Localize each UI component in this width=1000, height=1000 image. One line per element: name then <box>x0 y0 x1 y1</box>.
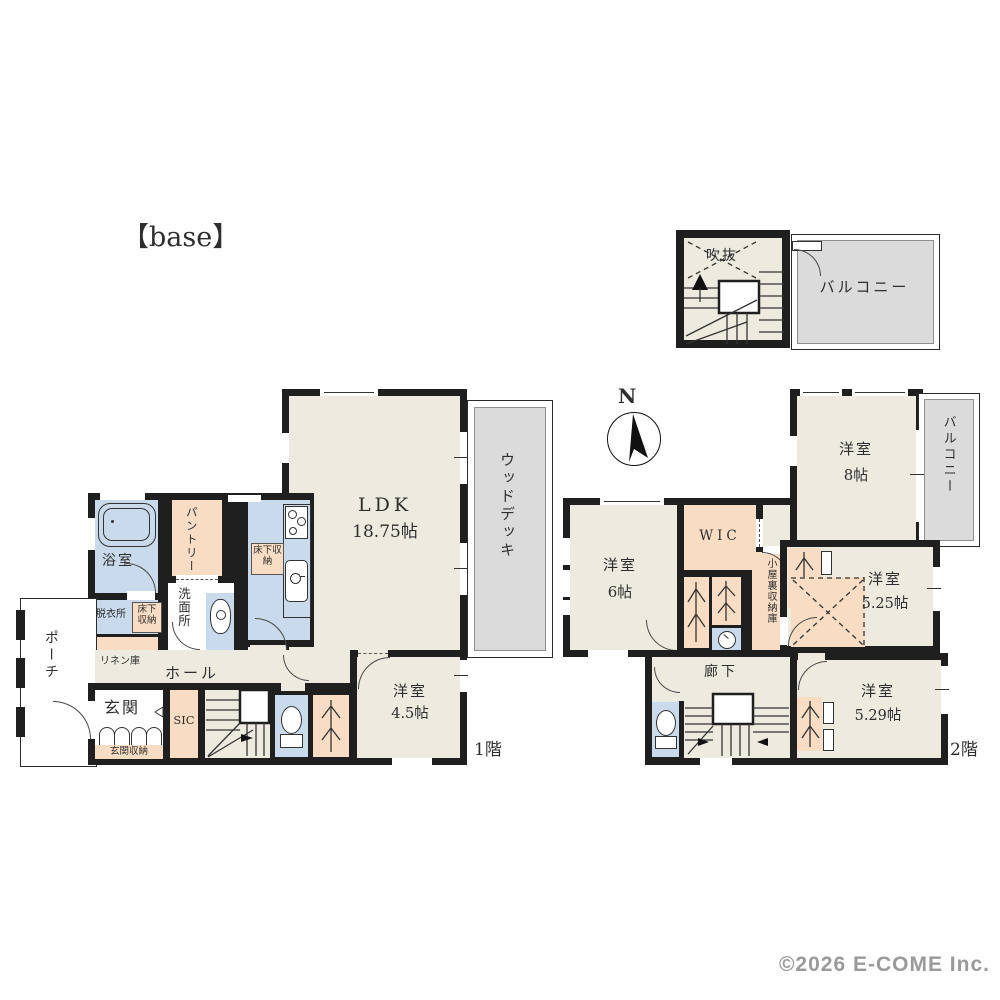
window <box>392 758 432 765</box>
floor-plan-canvas: 【base】 吹抜 バルコニー N 床下収納 <box>0 0 1000 1000</box>
western45-size: 4.5帖 <box>375 706 445 723</box>
linen-label: リネン庫 <box>100 656 140 668</box>
window <box>563 538 570 565</box>
entrance-door-marker <box>154 706 164 718</box>
underfloor-storage-kitchen: 床下収納 <box>251 543 284 575</box>
porch-wall-stub <box>16 610 25 640</box>
window <box>88 518 95 550</box>
western525-label: 洋室 <box>853 570 917 588</box>
window-tick <box>454 568 468 569</box>
window <box>916 430 923 522</box>
basin2f-icon <box>718 631 736 649</box>
floor1-label: 1階 <box>474 740 502 760</box>
closet-door <box>823 702 834 724</box>
window <box>563 600 570 615</box>
window-mullion <box>604 501 660 502</box>
western6-size: 6帖 <box>588 583 652 601</box>
balcony2f-label: バルコニー <box>940 415 956 495</box>
porch-wall-stub <box>16 707 25 737</box>
stairs-1f <box>205 690 270 758</box>
floor2-label: 2階 <box>950 740 978 760</box>
underfloor-storage-dressing: 床下収納 <box>132 602 162 633</box>
stairs-2f <box>684 692 790 758</box>
western529-size: 5.29帖 <box>838 708 918 725</box>
entrance-label: 玄関 <box>104 698 140 717</box>
washbasin-icon <box>210 599 231 634</box>
closet-door <box>821 551 832 575</box>
wic-label: WIC <box>684 528 756 544</box>
pantry-opening-dash <box>176 579 218 580</box>
porch-frame <box>20 598 97 767</box>
shoe-cabinet-icon <box>131 727 147 745</box>
wood-deck-label: ウッドデッキ <box>498 452 516 560</box>
window-mullion <box>855 392 905 393</box>
window-tick <box>454 457 468 458</box>
window <box>282 433 289 463</box>
window-tick <box>454 675 468 676</box>
toilet2f-icon <box>655 710 677 752</box>
window-tick <box>927 588 941 589</box>
window <box>588 650 628 657</box>
dressing-label: 脱衣所 <box>96 609 126 621</box>
western45-door-dash <box>358 653 388 654</box>
western529-door-gap <box>798 653 825 661</box>
window-mullion <box>803 392 839 393</box>
shoe-cabinet-icon <box>114 727 130 745</box>
wic-opening-dash <box>759 519 760 547</box>
attic-balcony-label: バルコニー <box>797 278 932 296</box>
window-tick <box>935 689 949 690</box>
pantry-label: パントリー <box>184 506 198 574</box>
page-title: 【base】 <box>122 222 239 254</box>
hanger-icon <box>800 699 821 749</box>
porch-wall-stub <box>16 658 25 688</box>
sic-label: SIC <box>170 714 198 728</box>
window-mullion <box>324 392 374 393</box>
western6-label: 洋室 <box>588 556 652 574</box>
kitchen-sink-icon <box>285 560 308 602</box>
hall-label: ホール <box>165 664 219 682</box>
compass-needle-icon <box>607 412 659 464</box>
bathtub-icon <box>98 503 156 547</box>
shoe-cabinet-icon <box>99 727 115 745</box>
hanger-icon <box>716 579 737 623</box>
window <box>790 436 797 466</box>
hanger-icon <box>320 698 342 754</box>
corridor-label: 廊下 <box>704 664 738 681</box>
window <box>700 758 732 765</box>
window <box>228 495 261 502</box>
western525-door-gap <box>780 617 788 645</box>
toilet1f-icon <box>280 706 303 750</box>
compass-north-label: N <box>618 384 636 408</box>
closet-door <box>823 729 834 751</box>
copyright-notice: ©2026 E-COME Inc. <box>735 952 990 977</box>
porch-label: ポーチ <box>42 630 59 681</box>
ldk-label: LDK <box>300 494 470 517</box>
western8-size: 8帖 <box>820 466 892 484</box>
hanger-icon <box>686 580 707 644</box>
entrance-storage: 玄関収納 <box>95 745 163 759</box>
shoe-cabinet-icon <box>146 727 162 745</box>
western529-label: 洋室 <box>846 682 910 700</box>
window-tick <box>910 474 924 475</box>
window <box>100 493 145 500</box>
ldk-size: 18.75帖 <box>300 522 470 542</box>
window <box>563 570 570 597</box>
western8-label: 洋室 <box>820 440 892 458</box>
western525-size: 5.25帖 <box>845 596 925 613</box>
attic-stairs <box>682 262 786 346</box>
western45-label: 洋室 <box>378 682 442 700</box>
